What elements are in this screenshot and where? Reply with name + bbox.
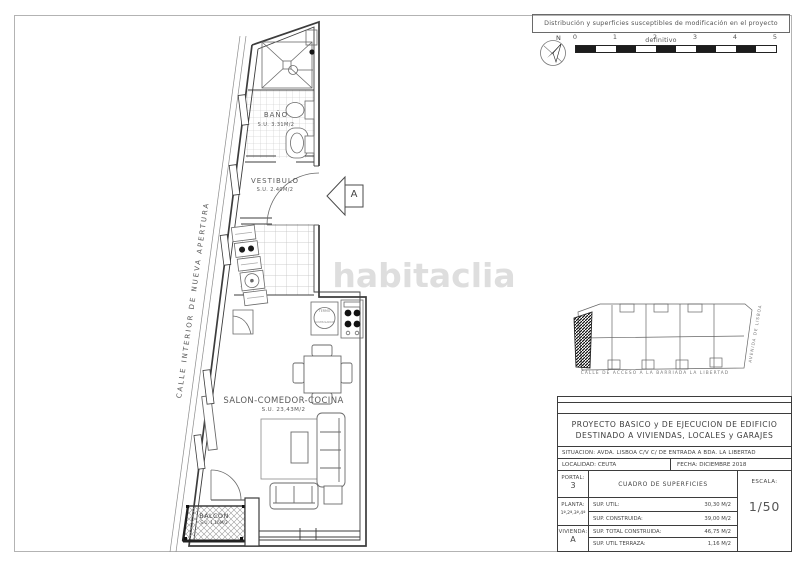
- escala-cell: ESCALA: 1/50: [738, 471, 791, 551]
- kitchen-corner-unit: [233, 310, 253, 334]
- portal-value: 3: [558, 481, 588, 490]
- fecha-cell: FECHA: DICIEMBRE 2018: [671, 459, 791, 471]
- room-label-vestibulo: VESTIBULO: [235, 177, 315, 185]
- sup-terraza-label: SUP. UTIL TERRAZA:: [593, 538, 646, 551]
- vivienda-value: A: [558, 535, 588, 544]
- street-edge-lines: [170, 36, 246, 552]
- sup-terraza-value: 1,16 M/2: [708, 538, 731, 551]
- project-title-line1: PROYECTO BASICO y DE EJECUCION DE EDIFIC…: [558, 419, 791, 430]
- room-label-balcon: BALCON: [184, 512, 244, 520]
- room-area-bano: S.U. 3.31M/2: [236, 122, 316, 128]
- cuadro-header-cell: CUADRO DE SUPERFICIES: [589, 471, 738, 498]
- room-area-salon: S.U. 23,43M/2: [206, 407, 361, 413]
- escala-value: 1/50: [738, 499, 791, 514]
- salon-window: [251, 528, 360, 540]
- plan-sheet: Distribución y superficies susceptibles …: [0, 0, 800, 565]
- localidad-cell: LOCALIDAD: CEUTA: [558, 459, 671, 471]
- side-table: [324, 486, 342, 504]
- balcony-door: [211, 470, 241, 500]
- planta-label: PLANTA:: [558, 502, 588, 508]
- room-label-salon: SALON-COMEDOR-COCINA: [206, 396, 361, 406]
- sup-total-label: SUP. TOTAL CONSTRUIDA:: [593, 526, 661, 538]
- project-title-cell: PROYECTO BASICO y DE EJECUCION DE EDIFIC…: [558, 414, 791, 447]
- water-heater-label-2: ACUMULADOR: [311, 320, 338, 324]
- scale-tick-1: 1: [609, 33, 621, 41]
- sup-util-row: SUP. UTIL: 30,30 M/2: [589, 498, 738, 512]
- room-label-bano: BAÑO: [236, 111, 316, 119]
- compass-north-label: N: [556, 34, 561, 42]
- sup-util-label: SUP. UTIL:: [593, 498, 619, 512]
- planta-value: 1ª,2ª,3ª,4ª: [558, 511, 588, 516]
- site-plan: [574, 304, 752, 370]
- scale-tick-2: 2: [649, 33, 661, 41]
- sup-terraza-row: SUP. UTIL TERRAZA: 1,16 M/2: [589, 538, 738, 551]
- sup-util-value: 30,30 M/2: [704, 498, 731, 512]
- water-heater-label-1: TERMO: [311, 309, 338, 313]
- compass-icon: [541, 41, 566, 66]
- sup-construida-label: SUP. CONSTRUIDA:: [593, 512, 643, 526]
- disclaimer-note: Distribución y superficies susceptibles …: [532, 14, 790, 33]
- sup-construida-value: 39,00 M/2: [704, 512, 731, 526]
- planta-cell: PLANTA: 1ª,2ª,3ª,4ª: [558, 498, 589, 526]
- situacion-cell: SITUACION: AVDA. LISBOA C/V C/ DE ENTRAD…: [558, 447, 791, 459]
- site-plan-unit-highlight: [574, 312, 592, 368]
- watermark: habitaclia: [326, 256, 522, 295]
- coffee-table: [291, 432, 308, 463]
- street-label-calle-acceso: CALLE DE ACCESO A LA BARRIADA LA LIBERTA…: [560, 371, 750, 376]
- title-block-spacer-2: [558, 403, 791, 414]
- sofa-three-seat: [317, 413, 345, 487]
- sup-total-row: SUP. TOTAL CONSTRUIDA: 46,75 M/2: [589, 526, 738, 538]
- room-area-balcon: S.U. 1,16M/2: [184, 521, 244, 526]
- scale-bar: [575, 45, 777, 53]
- entrance-marker-label: A: [345, 189, 363, 200]
- vivienda-cell: VIVIENDA: A: [558, 526, 589, 551]
- sup-construida-row: SUP. CONSTRUIDA: 39,00 M/2: [589, 512, 738, 526]
- portal-cell: PORTAL: 3: [558, 471, 589, 498]
- bath-cabinet: [305, 136, 314, 153]
- project-title-line2: DESTINADO A VIVIENDAS, LOCALES y GARAJES: [558, 430, 791, 441]
- sup-total-value: 46,75 M/2: [704, 526, 731, 538]
- scale-tick-0: 0: [569, 33, 581, 41]
- title-block: PROYECTO BASICO y DE EJECUCION DE EDIFIC…: [557, 396, 792, 552]
- rug: [261, 419, 319, 479]
- scale-tick-4: 4: [729, 33, 741, 41]
- sofa-two-seat: [270, 483, 318, 509]
- scale-tick-3: 3: [689, 33, 701, 41]
- room-area-vestibulo: S.U. 2.40M/2: [235, 187, 315, 193]
- scale-tick-5: 5: [769, 33, 781, 41]
- escala-label: ESCALA:: [738, 479, 791, 485]
- water-heater: [311, 302, 338, 335]
